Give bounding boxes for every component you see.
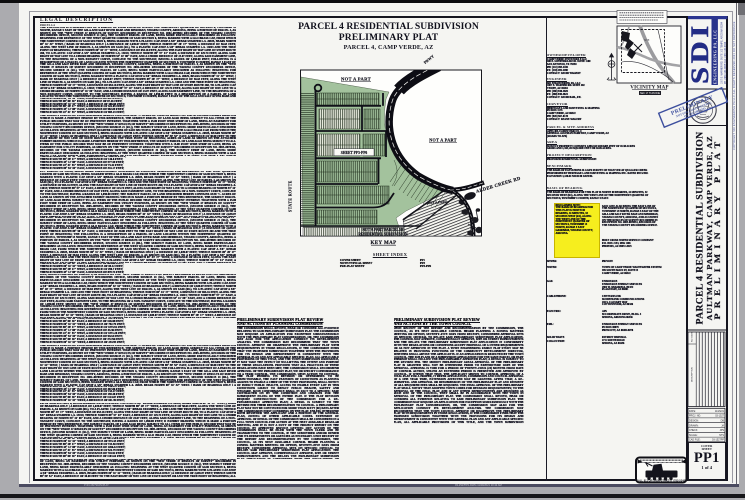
svg-text:DB: DB [721, 420, 725, 423]
svg-text:SHEET PP3-PP6: SHEET PP3-PP6 [341, 151, 368, 155]
svg-text:DRAWN:: DRAWN: [689, 424, 699, 427]
svg-text:RESIDENTIAL SUBDIVISION: RESIDENTIAL SUBDIVISION [358, 232, 408, 236]
svg-text:CHECK:: CHECK: [689, 429, 698, 432]
svg-text:JPS: JPS [720, 429, 725, 432]
svg-text:NOT A PART: NOT A PART [429, 138, 457, 143]
svg-text:NTS: NTS [719, 434, 724, 437]
svg-text:NO. DATE: NO. DATE [691, 331, 694, 342]
svg-text:03-1527: 03-1527 [715, 415, 724, 418]
svg-text:CALL 811 OR 1-800-STAKE-IT (78: CALL 811 OR 1-800-STAKE-IT (782-5348) [636, 478, 686, 482]
svg-text:SITE: SITE [644, 39, 650, 42]
svg-text:NOT A PART: NOT A PART [341, 77, 371, 82]
svg-text:DESIGN:: DESIGN: [689, 420, 699, 423]
svg-text:DATE:: DATE: [689, 410, 696, 413]
svg-text:11/29/21: 11/29/21 [715, 410, 725, 413]
svg-text:JA: JA [721, 424, 724, 427]
svg-text:ENGINEERING PA, LLC: ENGINEERING PA, LLC [713, 29, 718, 84]
svg-text:DESCRIPTION: DESCRIPTION [692, 367, 694, 382]
svg-text:PKWY: PKWY [423, 54, 435, 65]
svg-text:PROJ. NO:: PROJ. NO: [689, 415, 701, 418]
svg-text:ALDER CREEK RD: ALDER CREEK RD [476, 176, 522, 194]
svg-text:PARCEL 4 RESIDENTIAL SUBDIVISI: PARCEL 4 RESIDENTIAL SUBDIVISION [695, 132, 706, 325]
svg-text:STATE ROUTE: STATE ROUTE [289, 180, 293, 212]
svg-text:PH: (480) 940-4825 FAX: (480): PH: (480) 940-4825 FAX: (480) 940-4824 [724, 41, 727, 84]
svg-text:1007 E. WARNER RD. SUITE 102: 1007 E. WARNER RD. SUITE 102 TEMPE, ARIZ… [721, 21, 724, 84]
svg-text:SCALE:: SCALE: [689, 434, 698, 437]
svg-text:SDI: SDI [687, 22, 714, 84]
svg-text:PRELIMINARY PLAT: PRELIMINARY PLAT [713, 137, 722, 320]
